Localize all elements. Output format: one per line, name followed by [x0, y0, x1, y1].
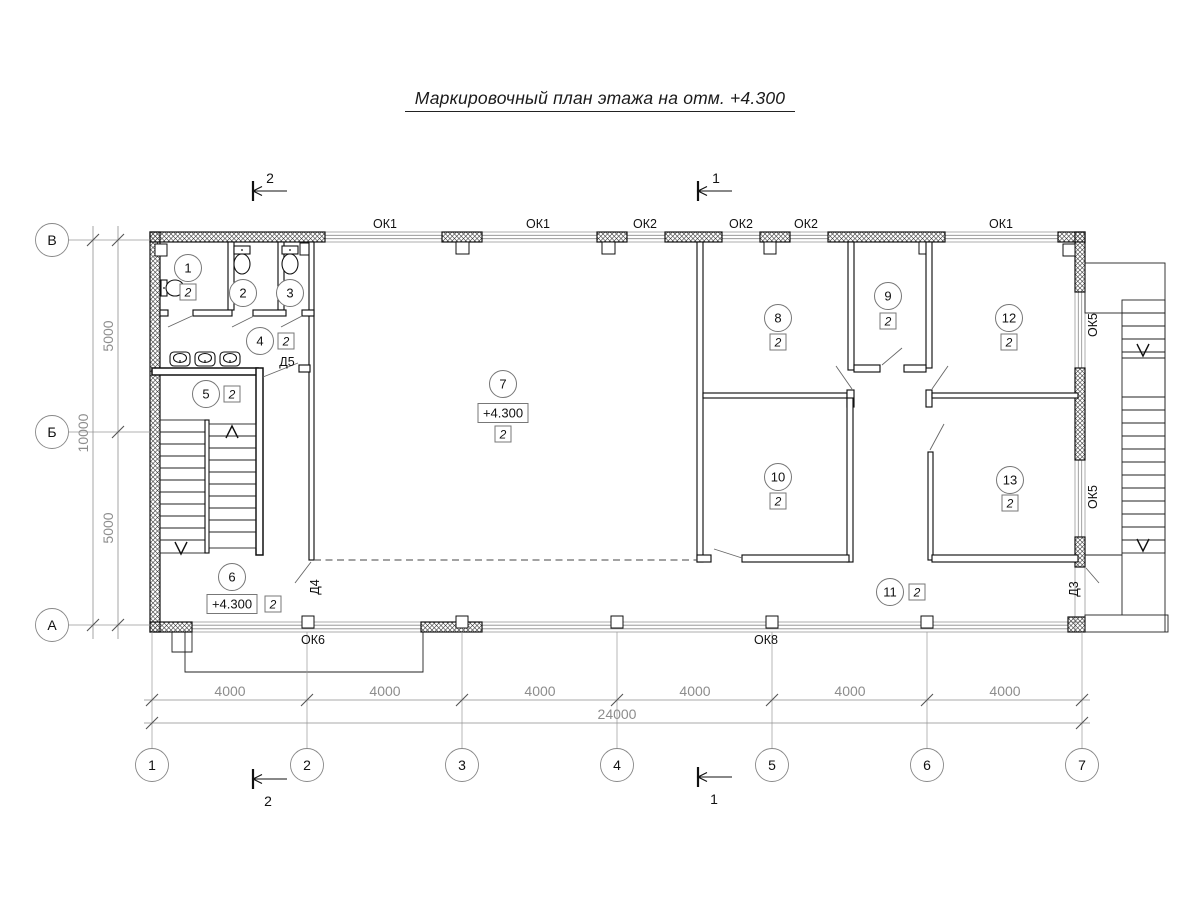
finish-type: 2 — [774, 336, 782, 350]
axis-letter: Б — [47, 424, 56, 440]
window-label: ОК6 — [301, 633, 325, 647]
window-label: ОК2 — [729, 217, 753, 231]
finish-type: 2 — [282, 335, 290, 349]
room-number: 8 — [774, 311, 781, 326]
axis-number: 7 — [1078, 757, 1086, 773]
axis-letter: В — [47, 232, 56, 248]
drawing-sheet: { "title": "Маркировочный план этажа на … — [0, 0, 1200, 900]
window-label: ОК2 — [633, 217, 657, 231]
room-number: 2 — [239, 286, 246, 301]
axis-number: 5 — [768, 757, 776, 773]
room-number: 11 — [883, 585, 897, 600]
window-label: ОК5 — [1086, 313, 1100, 337]
section-number: 2 — [264, 793, 272, 809]
axis-number: 3 — [458, 757, 466, 773]
room-number: 10 — [771, 470, 785, 485]
dim-text: 5000 — [100, 320, 116, 351]
axis-number: 4 — [613, 757, 621, 773]
dim-text: 4000 — [214, 683, 245, 699]
room-number: 6 — [228, 570, 235, 585]
finish-type: 2 — [884, 315, 892, 329]
door-label: Д3 — [1067, 581, 1081, 596]
door-leaves — [168, 316, 1099, 583]
room-markers-layer: 122342526+4.30027+4.30028292102112122132 — [175, 255, 1024, 614]
opening-labels-layer: ОК1ОК1ОК2ОК2ОК2ОК1ОК5ОК5ОК6ОК8Д5Д4Д3 — [279, 217, 1100, 647]
finish-type: 2 — [913, 586, 921, 600]
room-number: 12 — [1002, 311, 1016, 326]
room-number: 13 — [1003, 473, 1017, 488]
finish-type: 2 — [269, 598, 277, 612]
dim-text: 10000 — [75, 413, 91, 452]
drawing-title-text: Маркировочный план этажа на отм. +4.300 — [405, 88, 796, 112]
dim-text: 4000 — [369, 683, 400, 699]
window-label: ОК2 — [794, 217, 818, 231]
drawing-title: Маркировочный план этажа на отм. +4.300 — [0, 88, 1200, 112]
dim-text: 5000 — [100, 512, 116, 543]
dim-text: 4000 — [524, 683, 555, 699]
room-number: 9 — [884, 289, 891, 304]
elevation-mark: +4.300 — [483, 406, 523, 421]
finish-type: 2 — [1006, 497, 1014, 511]
window-label: ОК1 — [373, 217, 397, 231]
elevation-mark: +4.300 — [212, 597, 252, 612]
dim-text: 4000 — [989, 683, 1020, 699]
window-label: ОК8 — [754, 633, 778, 647]
section-number: 2 — [266, 170, 274, 186]
finish-type: 2 — [1005, 336, 1013, 350]
finish-type: 2 — [184, 286, 192, 300]
section-number: 1 — [710, 791, 718, 807]
section-marks-layer: 2121 — [253, 170, 732, 809]
dimension-text-layer: 5000500010000400040004000400040004000240… — [75, 320, 1021, 722]
finish-type: 2 — [774, 495, 782, 509]
door-label: Д4 — [308, 579, 322, 594]
axis-number: 2 — [303, 757, 311, 773]
entrance-porch — [172, 632, 423, 672]
room-number: 4 — [256, 334, 263, 349]
room-number: 1 — [184, 261, 191, 276]
room-number: 7 — [499, 377, 506, 392]
section-number: 1 — [712, 170, 720, 186]
floor-plan-canvas: 122342526+4.30027+4.30028292102112122132… — [0, 0, 1200, 900]
window-label: ОК1 — [526, 217, 550, 231]
internal-stairs — [160, 420, 256, 554]
finish-type: 2 — [228, 388, 236, 402]
window-label: ОК5 — [1086, 485, 1100, 509]
window-label: ОК1 — [989, 217, 1013, 231]
door-label: Д5 — [279, 355, 294, 369]
room-number: 5 — [202, 387, 209, 402]
axis-number: 1 — [148, 757, 156, 773]
axis-bubbles-layer: ВБА1234567 — [36, 224, 1099, 782]
finish-type: 2 — [499, 428, 507, 442]
axis-grid — [68, 226, 1090, 749]
dim-text: 4000 — [834, 683, 865, 699]
dim-text: 4000 — [679, 683, 710, 699]
axis-letter: А — [47, 617, 57, 633]
axis-number: 6 — [923, 757, 931, 773]
room-number: 3 — [286, 286, 293, 301]
dim-total-text: 24000 — [598, 706, 637, 722]
